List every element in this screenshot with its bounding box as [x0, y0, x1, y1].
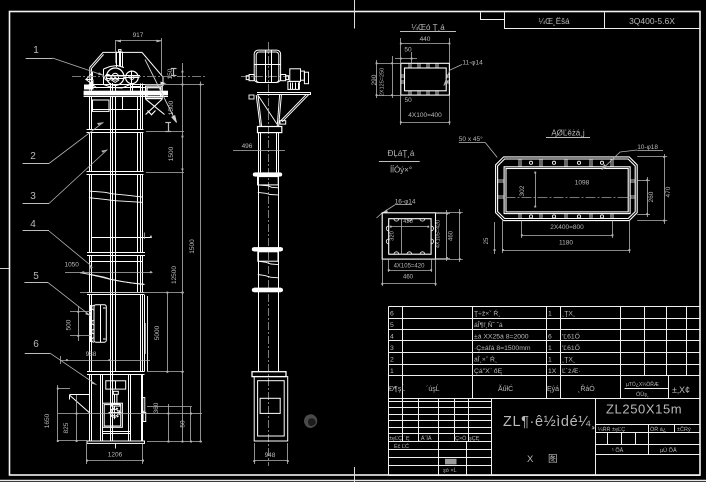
- svg-text:2X400=800: 2X400=800: [550, 224, 584, 231]
- svg-text:5: 5: [390, 322, 394, 329]
- svg-text:4X105=420: 4X105=420: [436, 220, 442, 248]
- svg-text:10-φ18: 10-φ18: [637, 144, 658, 151]
- svg-text:11-φ14: 11-φ14: [462, 60, 483, 67]
- svg-text:1: 1: [390, 368, 394, 375]
- svg-text:áÎ˛×ˇ Ŕ¸: áÎ˛×ˇ Ŕ¸: [474, 355, 497, 364]
- svg-text:4X100=400: 4X100=400: [408, 112, 442, 119]
- svg-text:12500: 12500: [171, 266, 178, 284]
- svg-text:ZL¶·ê½ìdé¼¸: ZL¶·ê½ìdé¼¸: [503, 414, 596, 430]
- svg-text:1: 1: [33, 45, 39, 56]
- svg-text:´úşĹ: ´úşĹ: [426, 384, 440, 393]
- svg-text:3: 3: [30, 191, 36, 202]
- svg-text:Éč ĽĆ: Éč ĽĆ: [394, 443, 409, 450]
- svg-text:1650: 1650: [44, 413, 51, 428]
- svg-text:şó ×Ĺ: şó ×Ĺ: [443, 467, 457, 474]
- svg-text:1098: 1098: [575, 180, 590, 187]
- svg-text:6: 6: [33, 339, 39, 350]
- svg-text:图: 图: [548, 454, 558, 465]
- svg-text:50: 50: [404, 47, 412, 54]
- svg-text:Đ¶şĹ: Đ¶şĹ: [389, 384, 405, 393]
- svg-text:500: 500: [66, 319, 73, 330]
- svg-text:3: 3: [390, 345, 394, 352]
- svg-text:460: 460: [403, 275, 414, 281]
- svg-text:Ţ÷ž×ˇ Ŕ¸: Ţ÷ž×ˇ Ŕ¸: [474, 309, 501, 318]
- svg-text:360: 360: [153, 402, 160, 413]
- svg-text:1206: 1206: [108, 452, 123, 459]
- svg-text:1X: 1X: [548, 368, 557, 375]
- svg-text:290: 290: [371, 74, 378, 85]
- svg-text:1180: 1180: [559, 240, 573, 247]
- svg-text:4: 4: [390, 334, 394, 341]
- svg-text:Çá"X¨ őĘ: Çá"X¨ őĘ: [474, 368, 503, 375]
- svg-text:320: 320: [390, 231, 396, 241]
- svg-text:ÓÜş¸: ÓÜş¸: [636, 391, 649, 398]
- svg-text:50: 50: [180, 420, 187, 428]
- svg-text:µÚ ÕÅ: µÚ ÕÅ: [660, 447, 677, 454]
- svg-text:ÖŘ á¿: ÖŘ á¿: [650, 425, 666, 433]
- svg-text:'Ľ61Ő: 'Ľ61Ő: [562, 343, 580, 352]
- svg-text:302: 302: [519, 185, 526, 196]
- svg-text:5000: 5000: [154, 325, 161, 340]
- svg-text:4: 4: [30, 219, 36, 230]
- svg-text:ZL250X15m: ZL250X15m: [606, 402, 682, 417]
- svg-text:1050: 1050: [64, 262, 79, 269]
- svg-text:Ľ´żÆ·: Ľ´żÆ·: [562, 368, 581, 375]
- svg-text:25: 25: [484, 237, 490, 244]
- svg-text:948: 948: [265, 452, 276, 459]
- svg-text:¸ŢX¸: ¸ŢX¸: [562, 311, 575, 318]
- svg-text:825: 825: [63, 422, 70, 433]
- svg-text:50: 50: [405, 97, 413, 104]
- svg-text:´Ę: ´Ę: [404, 436, 410, 442]
- svg-text:±ČŔý: ±ČŔý: [677, 426, 691, 433]
- svg-text:ÍĺÓý×°: ÍĺÓý×°: [390, 166, 412, 175]
- svg-text:¼ŘŔ ±ęĽÇ: ¼ŘŔ ±ęĽÇ: [598, 425, 625, 433]
- svg-text:1500: 1500: [189, 239, 196, 254]
- svg-text:1500: 1500: [168, 100, 175, 115]
- svg-text:460: 460: [449, 230, 455, 241]
- svg-text:6: 6: [548, 334, 552, 341]
- svg-text:±á XX25á 8=2000: ±á XX25á 8=2000: [474, 334, 529, 341]
- svg-text:6: 6: [390, 311, 394, 318]
- svg-text:50 x 45°: 50 x 45°: [459, 135, 483, 143]
- svg-text:ĐĻáŢ¸á: ĐĻáŢ¸á: [388, 149, 415, 158]
- svg-text:5: 5: [33, 271, 39, 282]
- svg-text:¼Œ˛Ëšá: ¼Œ˛Ëšá: [538, 17, 570, 26]
- svg-text:917: 917: [133, 32, 144, 39]
- svg-text:Χ: Χ: [527, 454, 534, 465]
- svg-text:±‚X¢: ±‚X¢: [672, 385, 690, 395]
- svg-text:¸Ä´ÎÄ: ¸Ä´ÎÄ: [419, 435, 432, 442]
- svg-text:150: 150: [167, 68, 174, 79]
- svg-text:3Q400-5.6X: 3Q400-5.6X: [629, 16, 675, 26]
- svg-text:ĄØĽěżá¸j: ĄØĽěżá¸j: [551, 129, 585, 138]
- svg-text:1: 1: [548, 357, 552, 364]
- svg-text:áÎ¶ľ¸Ň˘ ˇá: áÎ¶ľ¸Ň˘ ˇá: [474, 320, 503, 329]
- svg-text:·Ç±áľá 8=1500mm: ·Ç±áľá 8=1500mm: [474, 345, 531, 352]
- svg-text:¼Œó Ţ¸á: ¼Œó Ţ¸á: [411, 23, 445, 32]
- svg-text:2X125=250: 2X125=250: [380, 68, 386, 96]
- svg-text:µTÖ¿X¼ÖŘÆ: µTÖ¿X¼ÖŘÆ: [626, 380, 659, 388]
- svg-text:1500: 1500: [168, 146, 175, 161]
- svg-text:ĂűłĆ: ĂűłĆ: [498, 384, 513, 393]
- svg-text:¸ŢX¸: ¸ŢX¸: [562, 357, 575, 364]
- svg-text:1: 1: [548, 345, 552, 352]
- svg-text:496: 496: [242, 143, 253, 150]
- svg-text:¹ ÕÅ: ¹ ÕÅ: [612, 447, 624, 454]
- svg-text:˛ŘáÓ: ˛ŘáÓ: [578, 384, 595, 393]
- svg-text:'Ľ61Ő: 'Ľ61Ő: [562, 332, 580, 341]
- svg-text:1: 1: [548, 311, 552, 318]
- svg-text:420: 420: [403, 219, 413, 225]
- svg-text:4X105=420: 4X105=420: [394, 264, 426, 270]
- svg-text:şÇĘ: şÇĘ: [469, 436, 480, 442]
- svg-text:Ęýá: Ęýá: [547, 386, 559, 393]
- svg-text:470: 470: [665, 186, 672, 197]
- svg-text:440: 440: [420, 36, 431, 43]
- svg-text:Ç×Ö: Ç×Ö: [455, 435, 467, 442]
- svg-text:2: 2: [390, 357, 394, 364]
- svg-text:2: 2: [30, 151, 36, 162]
- svg-text:±ęĽÇ: ±ęĽÇ: [389, 436, 402, 442]
- svg-text:988: 988: [86, 351, 97, 358]
- svg-text:260: 260: [648, 191, 655, 202]
